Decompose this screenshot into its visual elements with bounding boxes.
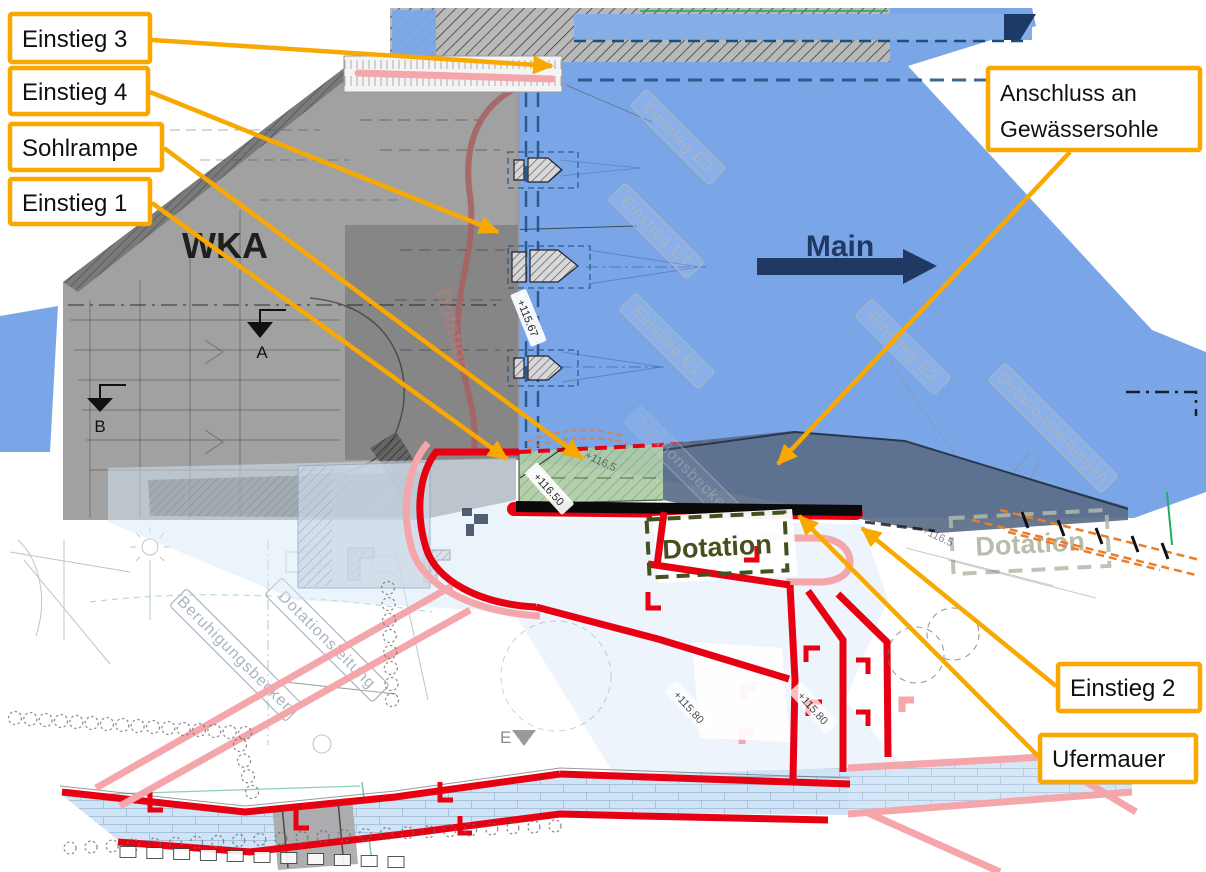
callout-label: Einstieg 2: [1070, 675, 1175, 702]
dotation-faded-label: Dotation: [975, 526, 1086, 562]
plan-canvas: Beruhigungsbecken Dotationsleitung Einst…: [0, 0, 1206, 872]
callout-label: Ufermauer: [1052, 746, 1165, 773]
section-marker-e: E: [500, 728, 536, 747]
wka-label: WKA: [182, 225, 268, 266]
lower-channel: [60, 752, 1136, 872]
callout-label: Anschluss an: [1000, 80, 1137, 106]
callout-label: Gewässersohle: [1000, 116, 1159, 142]
section-label: B: [94, 417, 105, 436]
flow-arrow-shaft: [757, 258, 903, 275]
callout-label: Einstieg 1: [22, 190, 127, 217]
section-label: A: [256, 343, 268, 362]
dotation-label: Dotation: [662, 529, 773, 565]
callout-label: Sohlrampe: [22, 135, 138, 162]
section-label: E: [500, 728, 511, 747]
callout-label: Einstieg 3: [22, 26, 127, 53]
callout-label: Einstieg 4: [22, 79, 127, 106]
upstream-water: [0, 306, 58, 452]
watermark-label: Beruhigungsbecken: [174, 593, 298, 717]
site-plan-svg: Beruhigungsbecken Dotationsleitung Einst…: [0, 0, 1206, 872]
